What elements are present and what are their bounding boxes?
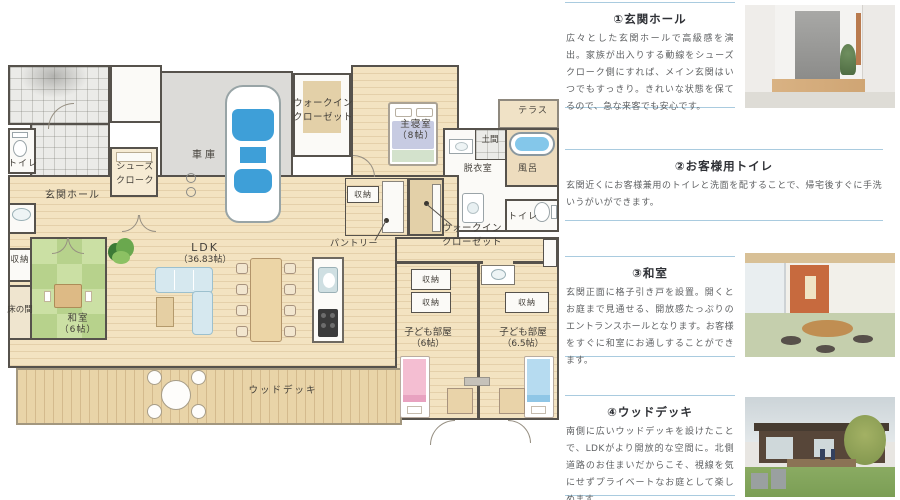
dining-chair (236, 305, 248, 316)
porch-area (110, 65, 162, 123)
sofa-cushion-line (193, 270, 194, 290)
deck-chair (191, 404, 206, 419)
kitchen-storage-label: 収納 (354, 189, 372, 200)
label-tokonoma: 床の間 (3, 305, 37, 316)
pantry-shelf (382, 181, 404, 233)
blanket (403, 359, 426, 397)
photo-lawn (745, 467, 895, 497)
label-master-bedroom: 主寝室 （8帖） (387, 119, 445, 143)
closet-label: 収納 (518, 297, 536, 308)
shared-washbasin (481, 265, 515, 285)
photo-wall-art (805, 276, 816, 299)
toilet-tank (551, 205, 557, 219)
bed-foot-cover (392, 150, 434, 162)
bathtub (509, 132, 555, 156)
wood-deck-area (16, 368, 402, 425)
photo-exterior-wood-deck (745, 397, 895, 497)
section-washitsu: ③和室 玄関正面に格子引き戸を設置。開くとお庭まで見通せる、開放感たっぷりのエン… (565, 256, 735, 357)
label-genkan-hall: 玄関ホール (30, 189, 115, 202)
label-washitsu: 和室 （6帖） (48, 313, 108, 337)
washer-drum (467, 202, 479, 214)
pillow (531, 406, 546, 414)
label-terrace: テラス (510, 106, 556, 118)
label-washitsu-size: （6帖） (48, 325, 108, 337)
photo-cushion (816, 345, 836, 353)
section-title: ②お客様用トイレ (566, 158, 882, 174)
photo-person (831, 449, 836, 460)
kids1-closet-b: 収納 (411, 292, 451, 313)
deck-chair (147, 404, 162, 419)
photo-japanese-room (745, 253, 895, 357)
photo-person (820, 449, 825, 460)
page: 収納 (0, 0, 900, 500)
burner (330, 323, 335, 328)
kids1-closet-a: 収納 (411, 269, 451, 290)
walkin-closet-2-room (408, 178, 444, 236)
photo-house-window (766, 437, 793, 459)
plant (108, 238, 134, 266)
pillow (395, 108, 412, 117)
photo-door-frame (856, 13, 861, 65)
kids2-closet: 収納 (505, 292, 549, 313)
kids1-door-arc (430, 420, 455, 445)
blanket-band (527, 395, 550, 402)
photo-window (745, 263, 786, 317)
photo-ceiling (745, 253, 895, 263)
kitchen-storage-closet: 収納 (347, 186, 379, 203)
section-body: 玄関正面に格子引き戸を設置。開くとお庭まで見通せる、開放感たっぷりのエントランス… (566, 285, 734, 370)
label-toilet-1: トイレ (6, 159, 40, 171)
car-rear-window (234, 169, 272, 193)
closet-label: 収納 (422, 297, 440, 308)
photo-left-wall (745, 5, 775, 92)
photo-entrance-hall (745, 5, 895, 108)
feature-sidebar: ①玄関ホール 広々とした玄関ホールで高級感を演出。家族が出入りする動線をシューズ… (565, 0, 900, 500)
kids-bed-pink (400, 356, 430, 418)
label-kids2-name: 子ども部屋 (488, 327, 558, 339)
label-bath: 風呂 (512, 164, 544, 176)
label-master-name: 主寝室 (387, 119, 445, 131)
deck-table (161, 380, 191, 410)
kitchen-counter (312, 257, 344, 343)
photo-tree (844, 415, 886, 465)
label-kids2-size: （6.5帖） (488, 339, 558, 351)
bicycle-wheel-1 (186, 173, 196, 183)
dining-chair (284, 305, 296, 316)
photo-low-table (802, 320, 853, 338)
photo-tile-floor (745, 92, 895, 108)
dining-chair (236, 284, 248, 295)
bicycle-wheel-2 (186, 187, 196, 197)
section-guest-toilet: ②お客様用トイレ 玄関近くにお客様兼用のトイレと洗面を配することで、帰宅後すぐに… (565, 149, 883, 221)
photo-plant (840, 44, 857, 75)
stove (318, 309, 338, 337)
closet-label: 収納 (422, 274, 440, 285)
label-walkin-closet-1: ウォークインクローゼット (291, 97, 355, 126)
label-kids1-name: 子ども部屋 (396, 327, 460, 339)
label-doma: 土間 (475, 135, 505, 146)
washbasin (12, 208, 31, 221)
label-kids-room-1: 子ども部屋 （6帖） (396, 327, 460, 351)
dining-chair (284, 263, 296, 274)
pillow (416, 108, 433, 117)
section-title: ③和室 (566, 265, 734, 281)
section-body: 広々とした玄関ホールで高級感を演出。家族が出入りする動線をシューズクローク側にす… (566, 31, 734, 116)
blanket (527, 359, 550, 397)
label-pantry: パントリー (328, 239, 380, 251)
desk (447, 388, 473, 414)
kids2-door-arc (508, 420, 531, 443)
dining-chair (236, 326, 248, 337)
tile-shading (20, 67, 89, 98)
section-wood-deck: ④ウッドデッキ 南側に広いウッドデッキを設けたことで、LDKがより開放的な空間に… (565, 395, 735, 496)
deck-chair (191, 370, 206, 385)
floor-cushion (85, 291, 92, 302)
kitchen-sink (318, 267, 338, 293)
tall-cabinet (543, 239, 557, 267)
kids-bed-blue (524, 356, 554, 418)
label-master-size: （8帖） (387, 131, 445, 143)
dining-table (250, 258, 282, 342)
section-entrance-hall: ①玄関ホール 広々とした玄関ホールで高級感を演出。家族が出入りする動線をシューズ… (565, 2, 735, 108)
floor-plan: 収納 (0, 55, 562, 500)
burner (321, 323, 326, 328)
photo-planter (771, 469, 786, 489)
section-title: ①玄関ホール (566, 11, 734, 27)
car (225, 85, 281, 223)
car-sunroof (240, 147, 266, 163)
shelf (464, 377, 490, 386)
sofa-cushion-line (174, 270, 175, 290)
toilet-tank (12, 132, 28, 138)
blanket-band (403, 395, 426, 402)
low-table (54, 284, 82, 308)
washing-machine (462, 193, 484, 223)
sink-basin (455, 142, 468, 151)
section-title: ④ウッドデッキ (566, 404, 734, 420)
bathtub-water (515, 137, 549, 151)
label-toilet-2: トイレ (506, 212, 540, 224)
vanity-sink (449, 139, 473, 154)
label-dressing-room: 脱衣室 (455, 164, 501, 176)
label-garage: 車庫 (183, 149, 227, 162)
label-ldk-name: LDK (172, 241, 238, 255)
label-wood-deck: ウッドデッキ (243, 385, 323, 397)
side-table (156, 297, 174, 327)
label-walkin-closet-2: ウォークインクローゼット (440, 222, 504, 251)
burner (330, 313, 335, 318)
pillow (407, 406, 422, 414)
photo-accent-wall (795, 11, 840, 79)
dining-chair (284, 326, 296, 337)
label-ldk-size: （36.83帖） (172, 255, 238, 267)
wall-kids-top-left (395, 261, 483, 264)
dining-chair (284, 284, 296, 295)
toilet-bowl (13, 140, 27, 157)
wall-kids-divider (477, 261, 480, 420)
photo-cushion (781, 336, 801, 344)
label-washitsu-name: 和室 (48, 313, 108, 325)
section-body: 南側に広いウッドデッキを設けたことで、LDKがより開放的な空間に。北側道路のお住… (566, 424, 734, 500)
entrance-porch-tiles (30, 123, 110, 179)
label-storage-left: 収納 (5, 255, 35, 266)
sofa-top (155, 267, 213, 293)
plant-leaf (112, 251, 130, 264)
sofa-chaise (192, 291, 213, 335)
label-shoes-cloak: シューズクローク (112, 161, 158, 188)
section-body: 玄関近くにお客様兼用のトイレと洗面を配することで、帰宅後すぐに手洗いうがいができ… (566, 178, 882, 212)
deck-chair (147, 370, 162, 385)
photo-planter (751, 473, 768, 489)
label-kids-room-2: 子ども部屋 （6.5帖） (488, 327, 558, 351)
label-ldk: LDK （36.83帖） (172, 241, 238, 267)
car-windshield (232, 109, 274, 141)
burner (321, 313, 326, 318)
sink-basin (491, 269, 506, 280)
label-kids1-size: （6帖） (396, 339, 460, 351)
floor-cushion (44, 291, 51, 302)
sink-basin (323, 273, 335, 288)
desk (499, 388, 525, 414)
